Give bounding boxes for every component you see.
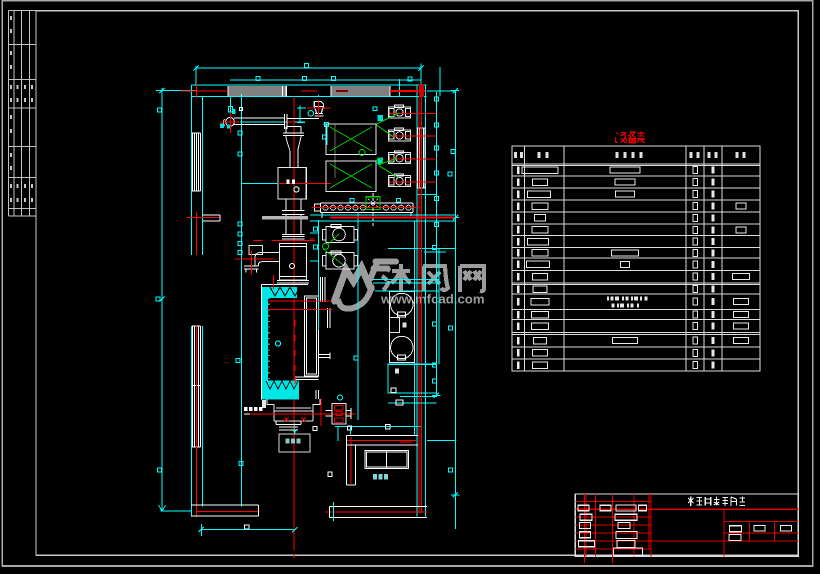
svg-text:www.mfcad.com: www.mfcad.com: [380, 292, 485, 307]
